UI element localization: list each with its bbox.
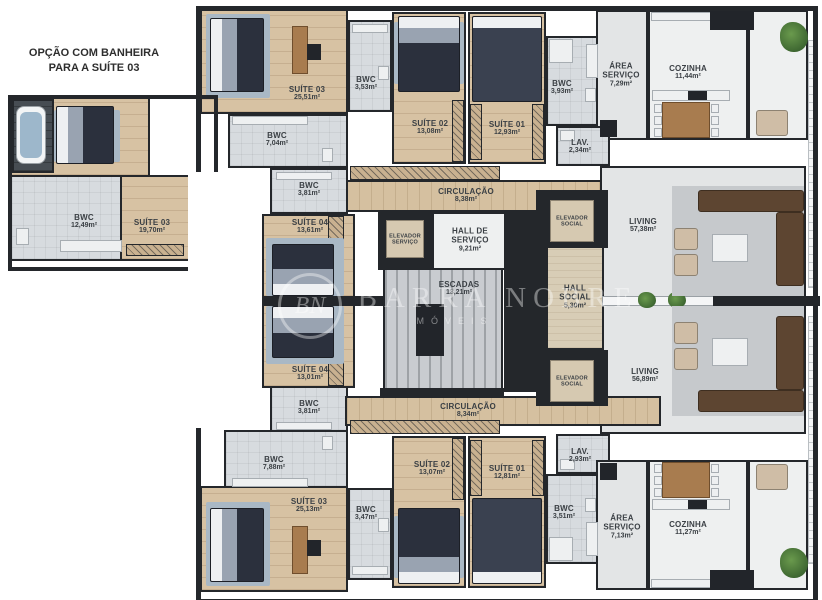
dining-chair bbox=[654, 476, 662, 485]
label-bwc-suite03-upper: BWC3,53m² bbox=[355, 75, 377, 93]
label-elevador-servico: ELEVADOR SERVIÇO bbox=[383, 234, 427, 247]
label-bwc-suites-lower: BWC3,51m² bbox=[553, 504, 575, 522]
kitchen-counter bbox=[651, 579, 713, 588]
room-name: ÁREA SERVIÇO bbox=[596, 61, 646, 80]
label-suite04-lower: SUÍTE 0413,01m² bbox=[292, 365, 328, 383]
label-area-servico-upper: ÁREA SERVIÇO7,29m² bbox=[596, 61, 646, 88]
label-suite03-lower: SUÍTE 0325,13m² bbox=[291, 497, 327, 515]
room-area: 8,38m² bbox=[455, 197, 477, 205]
dining-chair bbox=[654, 128, 662, 137]
sofa bbox=[776, 212, 804, 286]
wall-divider-left bbox=[262, 296, 383, 306]
room-name: BWC bbox=[74, 213, 94, 222]
vanity bbox=[276, 172, 332, 180]
vanity bbox=[232, 116, 308, 125]
closet bbox=[126, 244, 184, 256]
option-note: OPÇÃO COM BANHEIRA PARA A SUÍTE 03 bbox=[23, 46, 165, 76]
room-name: BWC bbox=[356, 505, 376, 514]
room-name: LIVING bbox=[629, 217, 657, 226]
bed bbox=[210, 18, 264, 92]
room-name: ELEVADOR SOCIAL bbox=[550, 216, 594, 229]
toilet bbox=[378, 66, 389, 80]
plant bbox=[780, 548, 808, 578]
closet bbox=[452, 100, 464, 162]
dining-chair bbox=[711, 116, 719, 125]
room-name: SUÍTE 04 bbox=[292, 365, 328, 374]
room-name: BWC bbox=[264, 455, 284, 464]
bed bbox=[472, 498, 542, 584]
room-area: 56,89m² bbox=[632, 377, 658, 385]
vanity bbox=[276, 422, 332, 430]
label-bwc-suite04-upper: BWC3,81m² bbox=[298, 181, 320, 199]
label-bwc-suites-upper: BWC3,93m² bbox=[551, 79, 573, 97]
label-bwc-hall-lower: BWC7,88m² bbox=[263, 455, 285, 473]
room-name: CIRCULAÇÃO bbox=[438, 187, 494, 196]
dining-table bbox=[662, 462, 710, 498]
room-name: ELEVADOR SERVIÇO bbox=[383, 234, 427, 247]
room-area: 9,21m² bbox=[459, 245, 481, 253]
toilet bbox=[322, 148, 333, 162]
label-bwc-hall-upper: BWC7,04m² bbox=[266, 131, 288, 149]
coffee-table bbox=[712, 338, 748, 366]
bed bbox=[210, 508, 264, 582]
bed bbox=[272, 306, 334, 358]
room-area: 12,93m² bbox=[494, 130, 520, 138]
label-cozinha-lower: COZINHA11,27m² bbox=[669, 520, 707, 538]
room-area: 25,51m² bbox=[294, 95, 320, 103]
label-suite02-upper: SUÍTE 0213,08m² bbox=[412, 119, 448, 137]
room-area: 7,04m² bbox=[266, 141, 288, 149]
washer bbox=[600, 120, 617, 137]
dining-table bbox=[662, 102, 710, 138]
room-area: 7,29m² bbox=[610, 80, 632, 88]
washer bbox=[600, 463, 617, 480]
room-name: LIVING bbox=[631, 367, 659, 376]
room-area: 7,88m² bbox=[263, 465, 285, 473]
closet bbox=[532, 104, 544, 160]
plant bbox=[638, 292, 656, 308]
sofa bbox=[698, 390, 804, 412]
label-suite03-upper: SUÍTE 0325,51m² bbox=[289, 85, 325, 103]
room-area: 13,08m² bbox=[417, 129, 443, 137]
desk bbox=[292, 526, 308, 574]
armchair bbox=[674, 348, 698, 370]
dining-chair bbox=[711, 128, 719, 137]
room-name: SUÍTE 01 bbox=[489, 120, 525, 129]
room-name: HALL DE SERVIÇO bbox=[445, 226, 495, 245]
room-name: SUÍTE 01 bbox=[489, 464, 525, 473]
room-name: CIRCULAÇÃO bbox=[440, 402, 496, 411]
cooktop bbox=[688, 500, 707, 509]
label-living-lower: LIVING56,89m² bbox=[631, 367, 659, 385]
label-detail-bwc: BWC 12,49m² bbox=[71, 213, 97, 231]
dining-chair bbox=[654, 104, 662, 113]
room-name: HALL SOCIAL bbox=[550, 283, 600, 302]
room-area: 2,34m² bbox=[569, 148, 591, 156]
shower bbox=[549, 537, 573, 561]
desk bbox=[292, 26, 308, 74]
room-name: SUÍTE 03 bbox=[134, 218, 170, 227]
room-name: BWC bbox=[299, 181, 319, 190]
room-area: 3,51m² bbox=[553, 514, 575, 522]
coffee-table bbox=[712, 234, 748, 262]
room-name: SUÍTE 03 bbox=[289, 85, 325, 94]
room-name: ELEVADOR SOCIAL bbox=[550, 376, 594, 389]
closet bbox=[452, 438, 464, 500]
dining-chair bbox=[711, 104, 719, 113]
room-name: SUÍTE 02 bbox=[412, 119, 448, 128]
room-area: 13,21m² bbox=[446, 290, 472, 298]
wall-segment bbox=[378, 260, 434, 270]
room-name: LAV. bbox=[571, 138, 589, 147]
room-area: 2,93m² bbox=[569, 457, 591, 465]
bed bbox=[272, 244, 334, 296]
room-name: SUÍTE 04 bbox=[292, 218, 328, 227]
label-suite01-lower: SUÍTE 0112,81m² bbox=[489, 464, 525, 482]
armchair bbox=[674, 322, 698, 344]
label-circulacao-lower: CIRCULAÇÃO8,34m² bbox=[440, 402, 496, 420]
vanity bbox=[352, 24, 388, 33]
room-name: COZINHA bbox=[669, 520, 707, 529]
room-name: BWC bbox=[356, 75, 376, 84]
window-sill bbox=[602, 296, 714, 306]
room-area: 13,07m² bbox=[419, 470, 445, 478]
room-area: 25,13m² bbox=[296, 507, 322, 515]
label-suite02-lower: SUÍTE 0213,07m² bbox=[414, 460, 450, 478]
note-line1: OPÇÃO COM BANHEIRA bbox=[23, 46, 165, 61]
room-area: 57,38m² bbox=[630, 227, 656, 235]
dining-chair bbox=[711, 476, 719, 485]
tv-panel bbox=[710, 570, 754, 590]
stairs-core bbox=[416, 304, 444, 356]
wall-core bbox=[504, 212, 548, 392]
closet bbox=[350, 420, 500, 434]
room-area: 12,49m² bbox=[71, 223, 97, 231]
label-living-upper: LIVING57,38m² bbox=[629, 217, 657, 235]
bed bbox=[472, 16, 542, 102]
label-elevador-social-lower: ELEVADOR SOCIAL bbox=[550, 376, 594, 389]
armchair bbox=[674, 228, 698, 250]
room-area: 3,53m² bbox=[355, 85, 377, 93]
facade-notch bbox=[188, 172, 262, 428]
wall-divider-right bbox=[713, 296, 820, 306]
room-name: COZINHA bbox=[669, 64, 707, 73]
dining-chair bbox=[711, 464, 719, 473]
vanity bbox=[232, 478, 308, 487]
room-area: 13,61m² bbox=[297, 228, 323, 236]
tv-panel bbox=[710, 10, 754, 30]
label-lav-upper: LAV.2,34m² bbox=[569, 138, 591, 156]
label-cozinha-upper: COZINHA11,44m² bbox=[669, 64, 707, 82]
balcony-rail bbox=[808, 316, 818, 564]
plant bbox=[780, 22, 808, 52]
toilet bbox=[585, 498, 596, 512]
closet bbox=[470, 104, 482, 160]
room-name: LAV. bbox=[571, 447, 589, 456]
toilet bbox=[378, 518, 389, 532]
bathtub-water bbox=[20, 112, 42, 158]
room-name: ÁREA SERVIÇO bbox=[597, 513, 647, 532]
label-suite04-upper: SUÍTE 0413,61m² bbox=[292, 218, 328, 236]
armchair bbox=[674, 254, 698, 276]
dining-chair bbox=[654, 488, 662, 497]
room-area: 8,34m² bbox=[457, 412, 479, 420]
note-line2: PARA A SUÍTE 03 bbox=[23, 61, 165, 76]
balcony-rail bbox=[808, 40, 818, 288]
room-name: SUÍTE 02 bbox=[414, 460, 450, 469]
label-bwc-suite03-lower: BWC3,47m² bbox=[355, 505, 377, 523]
room-name: BWC bbox=[552, 79, 572, 88]
label-circulacao-upper: CIRCULAÇÃO8,38m² bbox=[438, 187, 494, 205]
room-area: 13,01m² bbox=[297, 375, 323, 383]
armchair bbox=[756, 110, 788, 136]
wall-segment bbox=[380, 388, 504, 396]
armchair bbox=[756, 464, 788, 490]
dining-chair bbox=[654, 464, 662, 473]
dining-chair bbox=[711, 488, 719, 497]
office-chair bbox=[307, 44, 321, 60]
room-name: SUÍTE 03 bbox=[291, 497, 327, 506]
label-elevador-social-upper: ELEVADOR SOCIAL bbox=[550, 216, 594, 229]
toilet bbox=[322, 436, 333, 450]
label-suite01-upper: SUÍTE 0112,93m² bbox=[489, 120, 525, 138]
room-name: ESCADAS bbox=[439, 280, 480, 289]
label-bwc-suite04-lower: BWC3,81m² bbox=[298, 399, 320, 417]
sofa bbox=[698, 190, 804, 212]
bed bbox=[398, 16, 460, 92]
dining-chair bbox=[654, 116, 662, 125]
closet bbox=[350, 166, 500, 180]
shower bbox=[549, 39, 573, 63]
closet bbox=[532, 440, 544, 496]
office-chair bbox=[307, 540, 321, 556]
room-name: BWC bbox=[267, 131, 287, 140]
room-area: 3,93m² bbox=[551, 89, 573, 97]
label-hall-social: HALL SOCIAL5,30m² bbox=[550, 283, 600, 310]
room-area: 3,81m² bbox=[298, 409, 320, 417]
room-area: 7,13m² bbox=[611, 532, 633, 540]
bed bbox=[56, 106, 114, 164]
room-area: 5,30m² bbox=[564, 302, 586, 310]
vanity bbox=[352, 566, 388, 575]
bed bbox=[398, 508, 460, 584]
room-area: 11,44m² bbox=[675, 74, 701, 82]
toilet bbox=[16, 228, 29, 245]
room-area: 19,70m² bbox=[139, 228, 165, 236]
room-area: 11,27m² bbox=[675, 530, 701, 538]
label-area-servico-lower: ÁREA SERVIÇO7,13m² bbox=[597, 513, 647, 540]
toilet bbox=[585, 88, 596, 102]
kitchen-counter bbox=[651, 12, 713, 21]
room-name: BWC bbox=[299, 399, 319, 408]
room-area: 3,81m² bbox=[298, 191, 320, 199]
sofa bbox=[776, 316, 804, 390]
room-name: BWC bbox=[554, 504, 574, 513]
double-vanity bbox=[60, 240, 122, 252]
label-escadas: ESCADAS13,21m² bbox=[439, 280, 480, 298]
room-area: 12,81m² bbox=[494, 474, 520, 482]
floor-plan-canvas: OPÇÃO COM BANHEIRA PARA A SUÍTE 03 BWC 1… bbox=[0, 0, 822, 600]
label-lav-lower: LAV.2,93m² bbox=[569, 447, 591, 465]
label-detail-suite03: SUÍTE 03 19,70m² bbox=[134, 218, 170, 236]
label-hall-servico: HALL DE SERVIÇO9,21m² bbox=[445, 226, 495, 253]
room-area: 3,47m² bbox=[355, 515, 377, 523]
closet bbox=[470, 440, 482, 496]
cooktop bbox=[688, 91, 707, 100]
